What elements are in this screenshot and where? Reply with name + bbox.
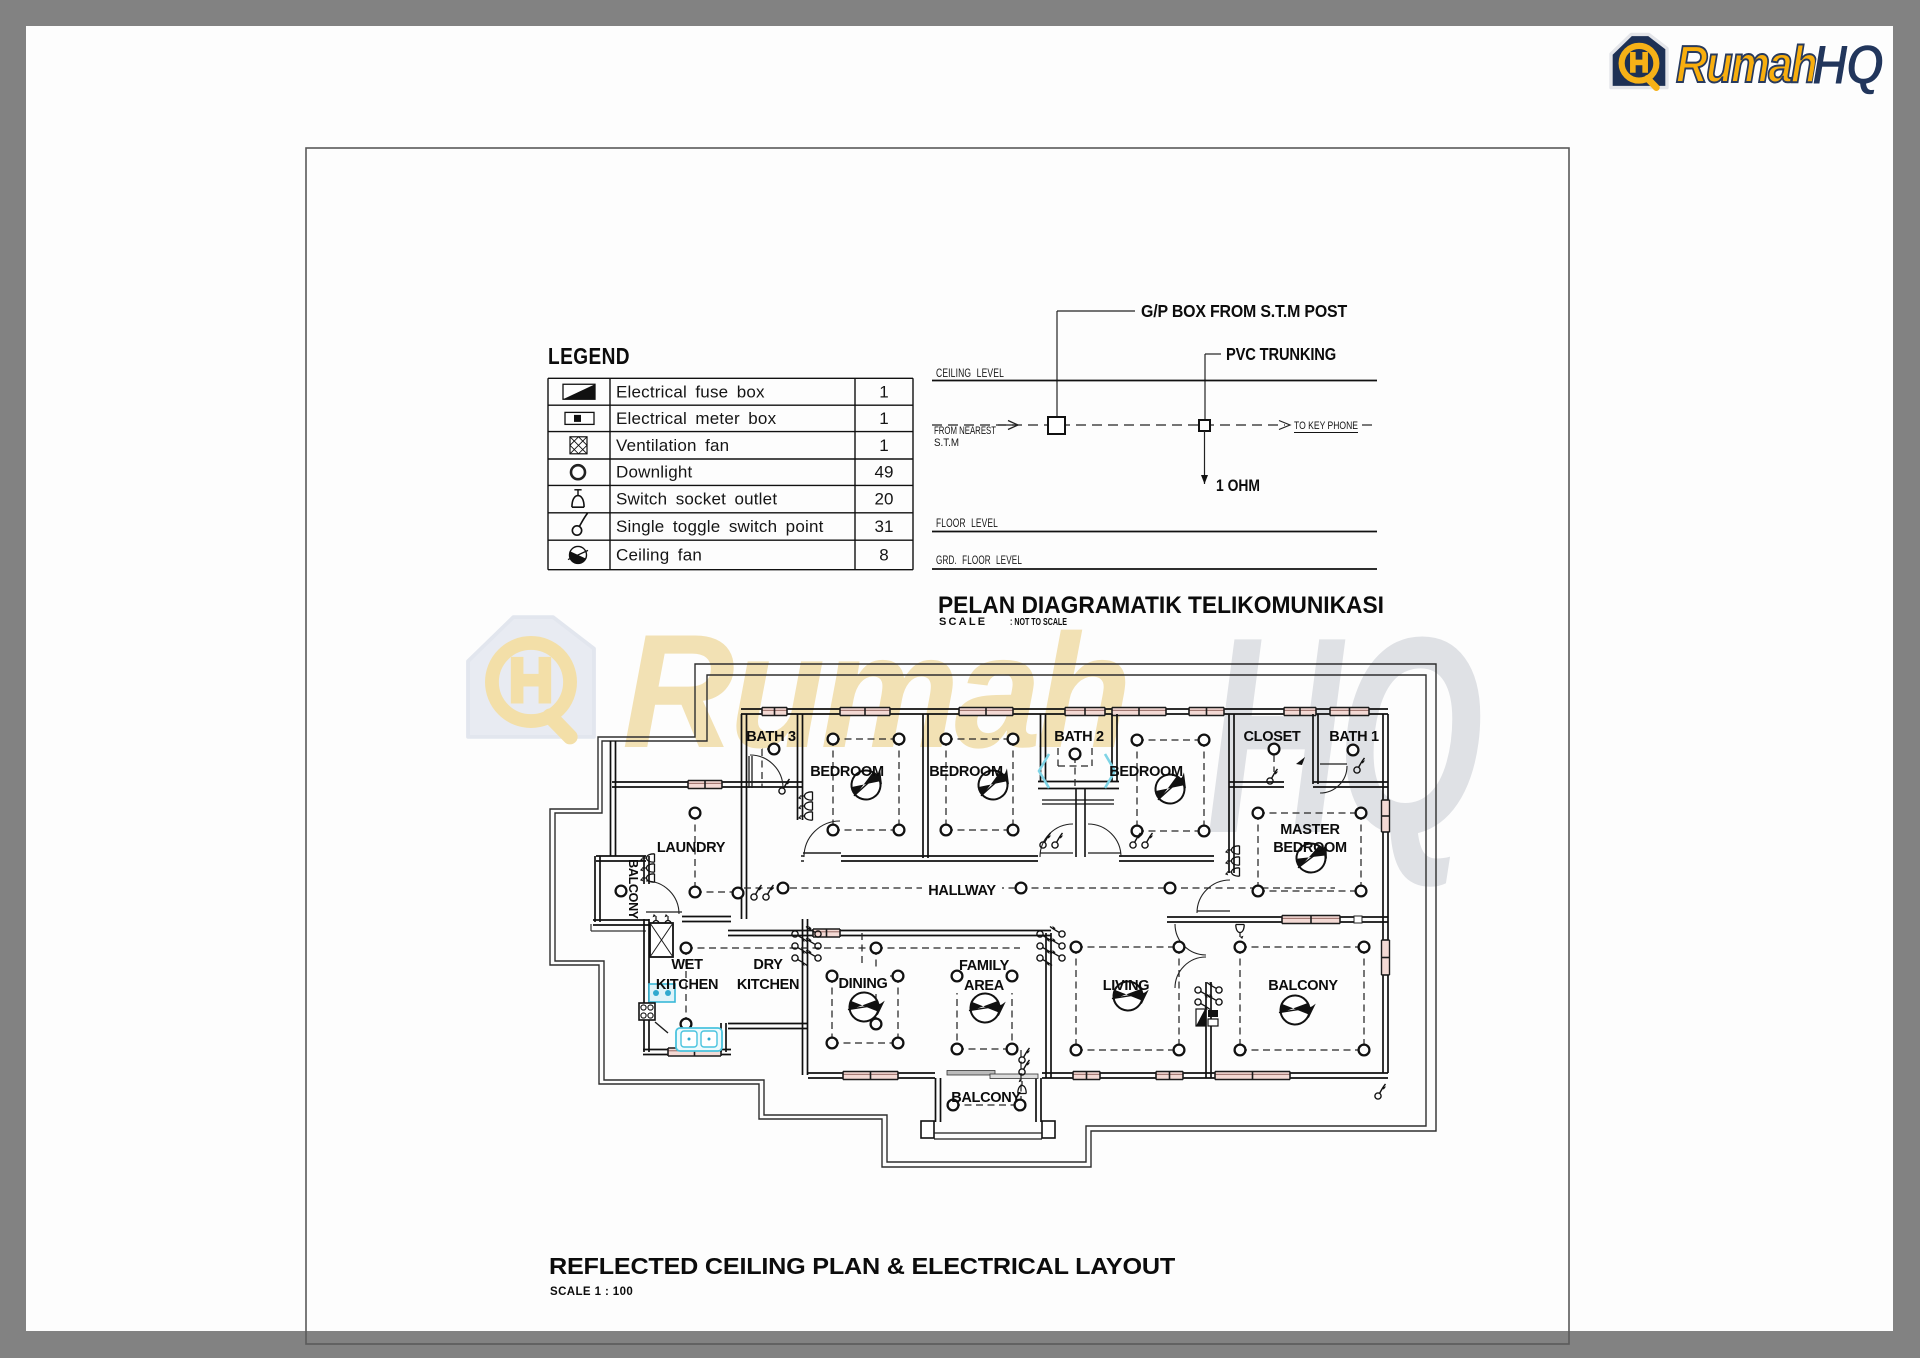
svg-text:8: 8: [879, 545, 888, 564]
svg-text:LAUNDRY: LAUNDRY: [657, 840, 726, 856]
svg-text:MASTER: MASTER: [1280, 822, 1340, 838]
svg-text:BEDROOM: BEDROOM: [929, 764, 1003, 780]
svg-text:Electrical fuse box: Electrical fuse box: [616, 382, 765, 401]
svg-text:DINING: DINING: [839, 976, 888, 992]
svg-text:GRD. FLOOR LEVEL: GRD. FLOOR LEVEL: [936, 555, 1022, 567]
svg-text:1: 1: [879, 409, 888, 428]
svg-text:1: 1: [879, 436, 888, 455]
svg-text:Switch socket outlet: Switch socket outlet: [616, 490, 777, 509]
svg-text:CLOSET: CLOSET: [1243, 729, 1300, 745]
svg-text:1 OHM: 1 OHM: [1216, 477, 1260, 495]
svg-text:BALCONY: BALCONY: [951, 1090, 1021, 1106]
svg-text:BEDROOM: BEDROOM: [1109, 764, 1183, 780]
svg-text:Electrical meter box: Electrical meter box: [616, 409, 777, 428]
svg-text:FLOOR LEVEL: FLOOR LEVEL: [936, 518, 998, 530]
svg-text:1: 1: [879, 382, 888, 401]
svg-text:S.T.M: S.T.M: [934, 437, 959, 449]
svg-text:SCALE: SCALE: [939, 616, 987, 628]
svg-text:BATH 3: BATH 3: [746, 729, 796, 745]
svg-text:DRY: DRY: [753, 957, 783, 973]
svg-text:WET: WET: [671, 957, 703, 973]
svg-text:Rumah: Rumah: [1676, 36, 1816, 94]
svg-text:REFLECTED CEILING PLAN & ELECT: REFLECTED CEILING PLAN & ELECTRICAL LAYO…: [549, 1253, 1176, 1279]
svg-text:G/P BOX FROM S.T.M POST: G/P BOX FROM S.T.M POST: [1141, 301, 1347, 321]
svg-text:TO KEY PHONE: TO KEY PHONE: [1294, 420, 1358, 432]
svg-text:HALLWAY: HALLWAY: [928, 883, 996, 899]
svg-text:AREA: AREA: [964, 978, 1005, 994]
svg-text:BALCONY: BALCONY: [1268, 978, 1338, 994]
svg-text:CEILING LEVEL: CEILING LEVEL: [936, 368, 1004, 380]
svg-text:PELAN DIAGRAMATIK TELIKOMUNIKA: PELAN DIAGRAMATIK TELIKOMUNIKASI: [938, 592, 1384, 619]
svg-text:FAMILY: FAMILY: [959, 958, 1010, 974]
svg-text:Downlight: Downlight: [616, 463, 693, 482]
svg-text:31: 31: [875, 517, 894, 536]
svg-text:PVC TRUNKING: PVC TRUNKING: [1226, 344, 1336, 364]
svg-text:BALCONY: BALCONY: [626, 859, 640, 920]
svg-text:KITCHEN: KITCHEN: [737, 977, 799, 993]
svg-text:BEDROOM: BEDROOM: [810, 764, 884, 780]
svg-text:Rumah: Rumah: [622, 601, 1127, 782]
svg-text:Ceiling fan: Ceiling fan: [616, 545, 702, 564]
svg-text:LEGEND: LEGEND: [548, 343, 630, 369]
svg-text:: NOT TO SCALE: : NOT TO SCALE: [1010, 616, 1067, 628]
svg-text:LIVING: LIVING: [1103, 978, 1150, 994]
svg-text:FROM NEAREST: FROM NEAREST: [934, 425, 996, 437]
svg-text:BATH 1: BATH 1: [1329, 729, 1379, 745]
svg-text:KITCHEN: KITCHEN: [656, 977, 718, 993]
svg-text:SCALE 1 : 100: SCALE 1 : 100: [550, 1286, 633, 1298]
svg-text:Ventilation fan: Ventilation fan: [616, 436, 729, 455]
svg-text:BEDROOM: BEDROOM: [1273, 840, 1347, 856]
svg-text:HQ: HQ: [1812, 33, 1883, 97]
svg-text:20: 20: [875, 490, 894, 509]
svg-text:BATH 2: BATH 2: [1054, 729, 1104, 745]
svg-text:49: 49: [875, 463, 894, 482]
svg-text:Single toggle switch point: Single toggle switch point: [616, 517, 824, 536]
